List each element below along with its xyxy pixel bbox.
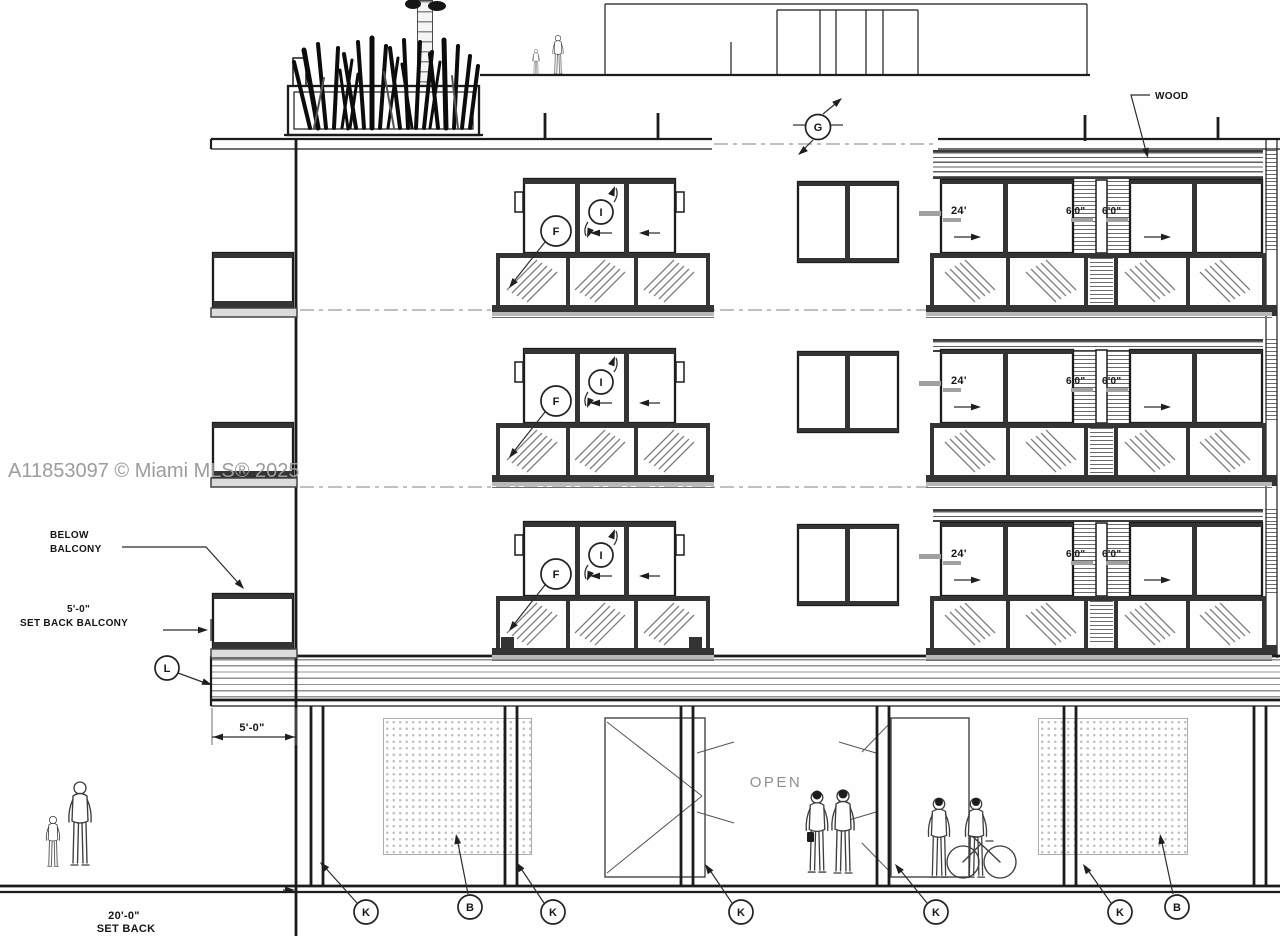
- svg-text:K: K: [737, 907, 745, 919]
- floor-3: [492, 522, 1272, 661]
- below-balcony-callout: BELOW BALCONY: [50, 530, 247, 591]
- section-marker-G: G: [793, 95, 844, 157]
- mls-watermark: A11853097 © Miami MLS® 2025: [8, 460, 299, 482]
- left-balcony-floor3: [211, 594, 297, 658]
- svg-text:BELOW: BELOW: [50, 530, 89, 541]
- open-label: OPEN: [750, 774, 803, 791]
- slab-marker-L: L: [155, 656, 213, 688]
- svg-text:K: K: [932, 907, 940, 919]
- svg-text:20'-0": 20'-0": [108, 910, 140, 922]
- person-right-1: [928, 798, 949, 877]
- person-center-1: [806, 792, 828, 873]
- svg-text:5'-0": 5'-0": [67, 604, 90, 615]
- podium-slab: [211, 656, 1280, 706]
- person-roof-adult: [553, 35, 563, 73]
- person-roof-child: [533, 49, 540, 74]
- ground-setback-dimension: 20'-0" SET BACK: [97, 887, 295, 935]
- svg-text:G: G: [814, 122, 823, 134]
- svg-text:WOOD: WOOD: [1155, 91, 1188, 102]
- person-left-adult: [69, 782, 91, 865]
- floor-2: [492, 349, 1272, 488]
- svg-text:5'-0": 5'-0": [239, 722, 264, 734]
- person-center-2: [832, 790, 854, 873]
- svg-text:SET BACK BALCONY: SET BACK BALCONY: [20, 618, 128, 629]
- svg-text:L: L: [164, 663, 171, 675]
- svg-text:B: B: [1173, 902, 1181, 914]
- person-left-child: [46, 816, 59, 866]
- svg-text:K: K: [549, 907, 557, 919]
- columns: [311, 706, 1266, 886]
- svg-text:K: K: [362, 907, 370, 919]
- linework-layer: 24' 6'0" 6'0" F I: [0, 0, 1280, 936]
- ground-floor: [0, 706, 1280, 892]
- elevation-drawing: 24' 6'0" 6'0" F I: [0, 0, 1280, 936]
- svg-text:B: B: [466, 902, 474, 914]
- svg-text:SET BACK: SET BACK: [97, 923, 156, 935]
- svg-text:BALCONY: BALCONY: [50, 544, 102, 555]
- setback-balcony-callout: 5'-0" SET BACK BALCONY: [20, 604, 211, 641]
- svg-text:K: K: [1116, 907, 1124, 919]
- floor-1: [492, 179, 1272, 318]
- balcony-depth-dimension: 5'-0": [212, 708, 296, 745]
- roof-structure: [480, 4, 1090, 75]
- left-balcony-floor1: [211, 253, 297, 317]
